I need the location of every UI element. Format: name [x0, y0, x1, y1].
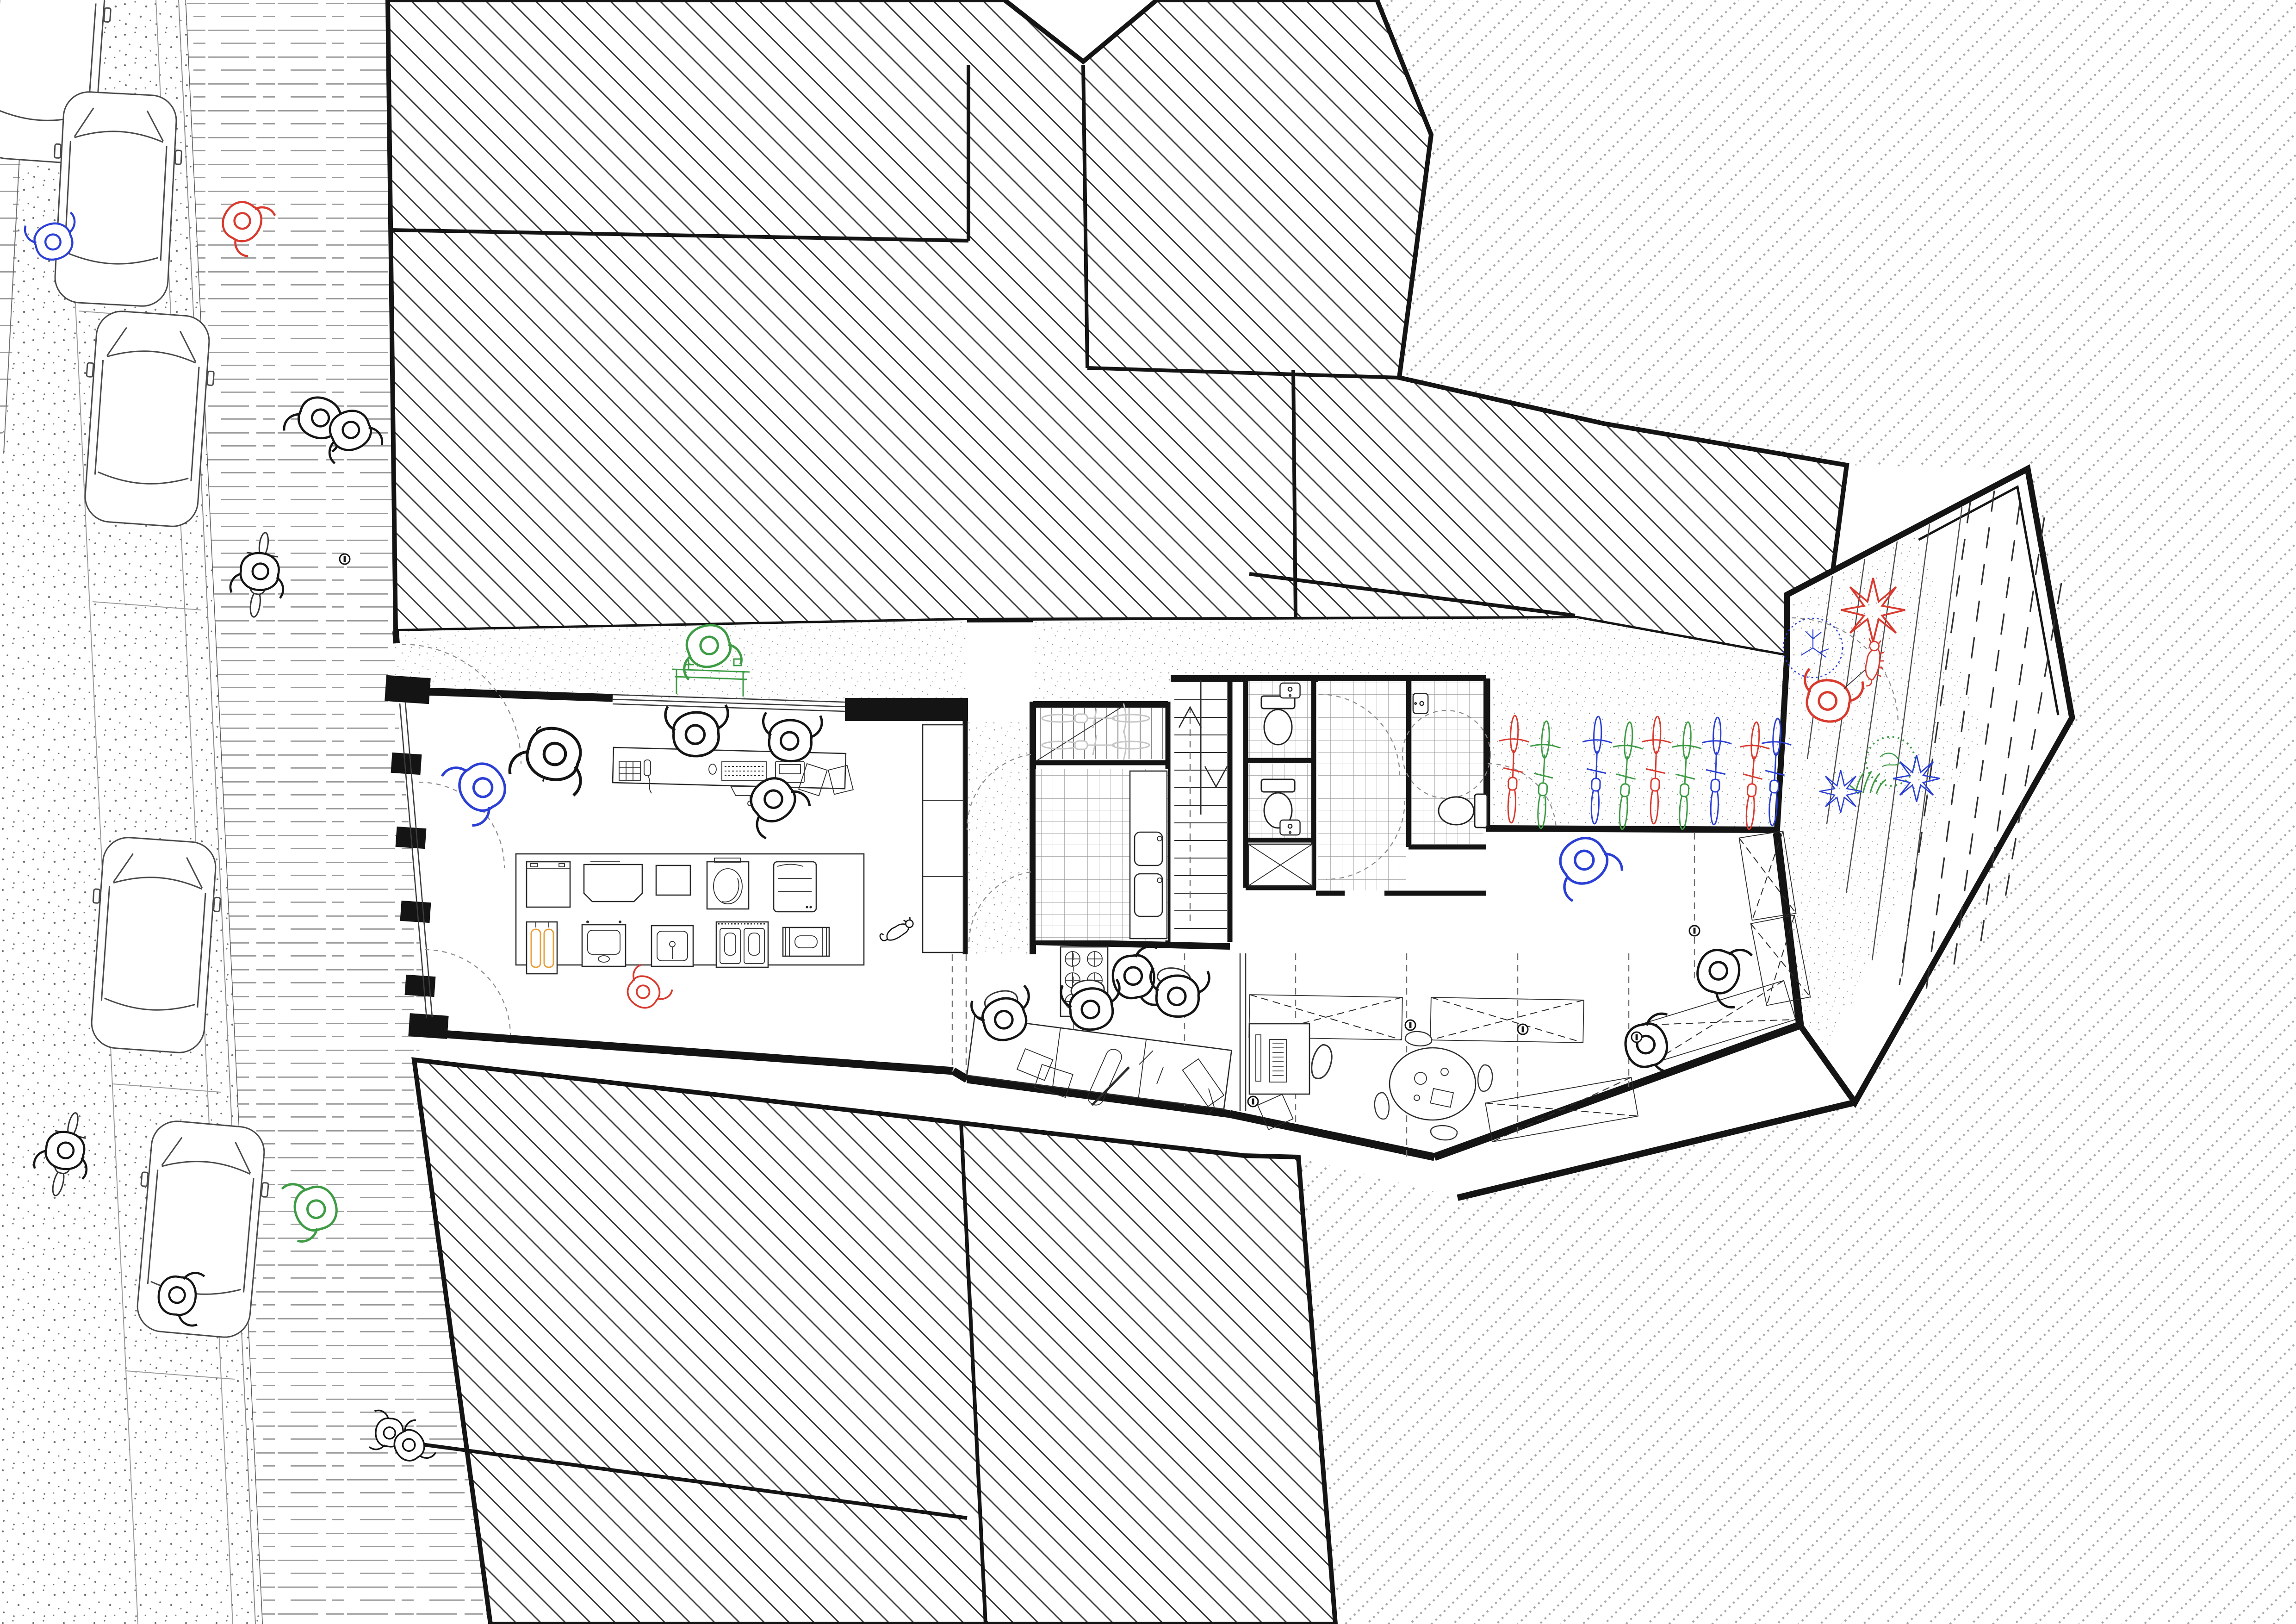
toaster-grill	[783, 927, 829, 956]
floor-anchor-2	[1518, 1024, 1528, 1034]
site-plan-stage	[0, 0, 2296, 1624]
sink-unit	[652, 926, 693, 966]
north-wall-pier	[845, 698, 968, 721]
mini-fridge	[774, 862, 816, 912]
floor-anchor-5	[1248, 1096, 1258, 1107]
small-appliance-box	[656, 865, 690, 895]
side-corridor-court	[965, 722, 1033, 954]
floor-anchor-1	[1405, 1020, 1415, 1030]
parked-car-3	[83, 835, 224, 1055]
appliance-table	[516, 854, 864, 974]
floor-plan-drawing	[0, 0, 2296, 1624]
laundry-tub	[584, 862, 642, 902]
street-drain	[340, 554, 350, 564]
wc-2	[1248, 764, 1311, 838]
wc-1	[1248, 681, 1311, 758]
dishwasher	[582, 921, 626, 966]
parked-car-2	[76, 309, 217, 529]
double-fryer	[716, 922, 768, 967]
parked-car-1	[47, 90, 184, 308]
tiled-hall	[1318, 681, 1406, 890]
floor-anchor-4	[1689, 926, 1700, 936]
kitchen	[1036, 769, 1168, 940]
heating-element-rack	[527, 922, 557, 974]
storage-closet	[1248, 844, 1312, 886]
kitchen-sink-2	[1135, 874, 1162, 916]
accessible-wc	[1402, 681, 1490, 844]
washing-machine	[527, 862, 570, 907]
washer-round-door	[707, 858, 749, 909]
wall-shelving-unit	[923, 725, 963, 952]
floor-anchor-3	[1632, 1032, 1642, 1042]
